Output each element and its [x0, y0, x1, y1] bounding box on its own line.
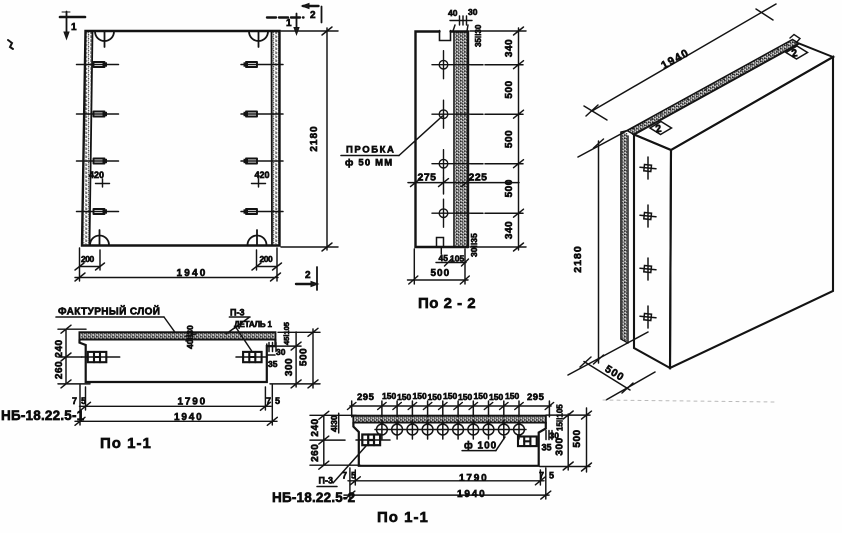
- svg-text:420: 420: [255, 170, 270, 180]
- svg-text:260: 260: [54, 361, 65, 379]
- svg-text:240: 240: [310, 418, 321, 436]
- svg-text:ф 100: ф 100: [464, 440, 497, 452]
- svg-text:2: 2: [791, 47, 799, 60]
- svg-text:500: 500: [572, 429, 583, 447]
- svg-text:30: 30: [276, 347, 286, 357]
- svg-text:30ǀǀ35: 30ǀǀ35: [469, 233, 479, 257]
- svg-text:2180: 2180: [572, 245, 584, 272]
- svg-text:150: 150: [474, 391, 488, 401]
- svg-text:500: 500: [431, 268, 451, 279]
- svg-text:15ǀǀ105: 15ǀǀ105: [556, 404, 565, 431]
- svg-text:П-3: П-3: [319, 476, 333, 486]
- svg-text:150: 150: [458, 392, 472, 402]
- svg-text:ф 50 ММ: ф 50 ММ: [345, 158, 393, 169]
- svg-text:5: 5: [275, 396, 280, 406]
- svg-text:1790: 1790: [459, 473, 488, 484]
- svg-text:35: 35: [542, 443, 552, 453]
- svg-text:500: 500: [504, 80, 515, 98]
- svg-text:300: 300: [555, 437, 566, 455]
- svg-text:30: 30: [468, 7, 478, 17]
- svg-text:225: 225: [469, 172, 488, 184]
- svg-text:260: 260: [310, 444, 321, 462]
- svg-text:1790: 1790: [178, 397, 207, 408]
- svg-text:7: 7: [72, 396, 77, 406]
- svg-text:П-3: П-3: [230, 308, 244, 318]
- svg-text:По 1-1: По 1-1: [377, 509, 429, 526]
- svg-text:По 1-1: По 1-1: [100, 435, 152, 452]
- svg-text:295: 295: [527, 392, 545, 403]
- svg-text:НБ-18.22.5-2: НБ-18.22.5-2: [272, 490, 355, 505]
- svg-text:2: 2: [655, 123, 663, 136]
- svg-text:150: 150: [413, 391, 427, 401]
- svg-text:200: 200: [81, 254, 94, 264]
- svg-text:500: 500: [504, 130, 515, 148]
- svg-text:150: 150: [397, 392, 411, 402]
- svg-text:ПРОБКА: ПРОБКА: [346, 145, 396, 156]
- svg-text:150: 150: [428, 392, 442, 402]
- svg-text:5: 5: [81, 396, 86, 406]
- svg-text:105: 105: [450, 254, 464, 264]
- svg-text:240: 240: [54, 339, 65, 357]
- svg-text:1940: 1940: [177, 268, 208, 279]
- svg-text:45: 45: [439, 253, 449, 263]
- svg-text:150: 150: [505, 391, 519, 401]
- svg-text:5: 5: [549, 471, 554, 481]
- svg-text:200: 200: [260, 254, 273, 264]
- svg-text:340: 340: [504, 221, 515, 239]
- svg-text:40ǀǀ30: 40ǀǀ30: [185, 325, 195, 349]
- svg-text:295: 295: [357, 392, 375, 403]
- svg-text:1940: 1940: [174, 412, 203, 423]
- svg-text:ДЕТАЛЬ 1: ДЕТАЛЬ 1: [234, 320, 272, 329]
- svg-text:40: 40: [448, 8, 458, 18]
- svg-text:35: 35: [268, 359, 278, 369]
- svg-text:45ǀ105: 45ǀ105: [282, 322, 291, 345]
- svg-text:1: 1: [71, 22, 77, 33]
- svg-text:150: 150: [443, 391, 457, 401]
- svg-text:275: 275: [418, 172, 437, 184]
- svg-text:По 2 - 2: По 2 - 2: [418, 295, 476, 312]
- svg-text:500: 500: [299, 348, 310, 366]
- svg-text:35ǀǀ30: 35ǀǀ30: [474, 24, 483, 47]
- svg-text:2: 2: [310, 10, 316, 21]
- svg-text:4ǀ30: 4ǀ30: [329, 415, 339, 432]
- svg-text:5: 5: [351, 471, 356, 481]
- svg-text:150: 150: [489, 392, 503, 402]
- svg-text:150: 150: [382, 391, 396, 401]
- svg-text:7: 7: [539, 471, 544, 481]
- svg-text:300: 300: [284, 358, 295, 376]
- svg-text:1: 1: [286, 18, 292, 29]
- svg-text:1940: 1940: [659, 47, 692, 72]
- svg-text:2180: 2180: [309, 125, 320, 151]
- svg-text:ФАКТУРНЫЙ СЛОЙ: ФАКТУРНЫЙ СЛОЙ: [58, 305, 160, 318]
- svg-text:7: 7: [266, 396, 271, 406]
- svg-text:НБ-18.22.5-1: НБ-18.22.5-1: [1, 408, 85, 423]
- svg-text:340: 340: [504, 39, 515, 57]
- svg-text:2: 2: [305, 270, 311, 281]
- svg-text:420: 420: [89, 170, 104, 180]
- svg-text:1940: 1940: [457, 489, 486, 500]
- svg-text:7: 7: [342, 471, 347, 481]
